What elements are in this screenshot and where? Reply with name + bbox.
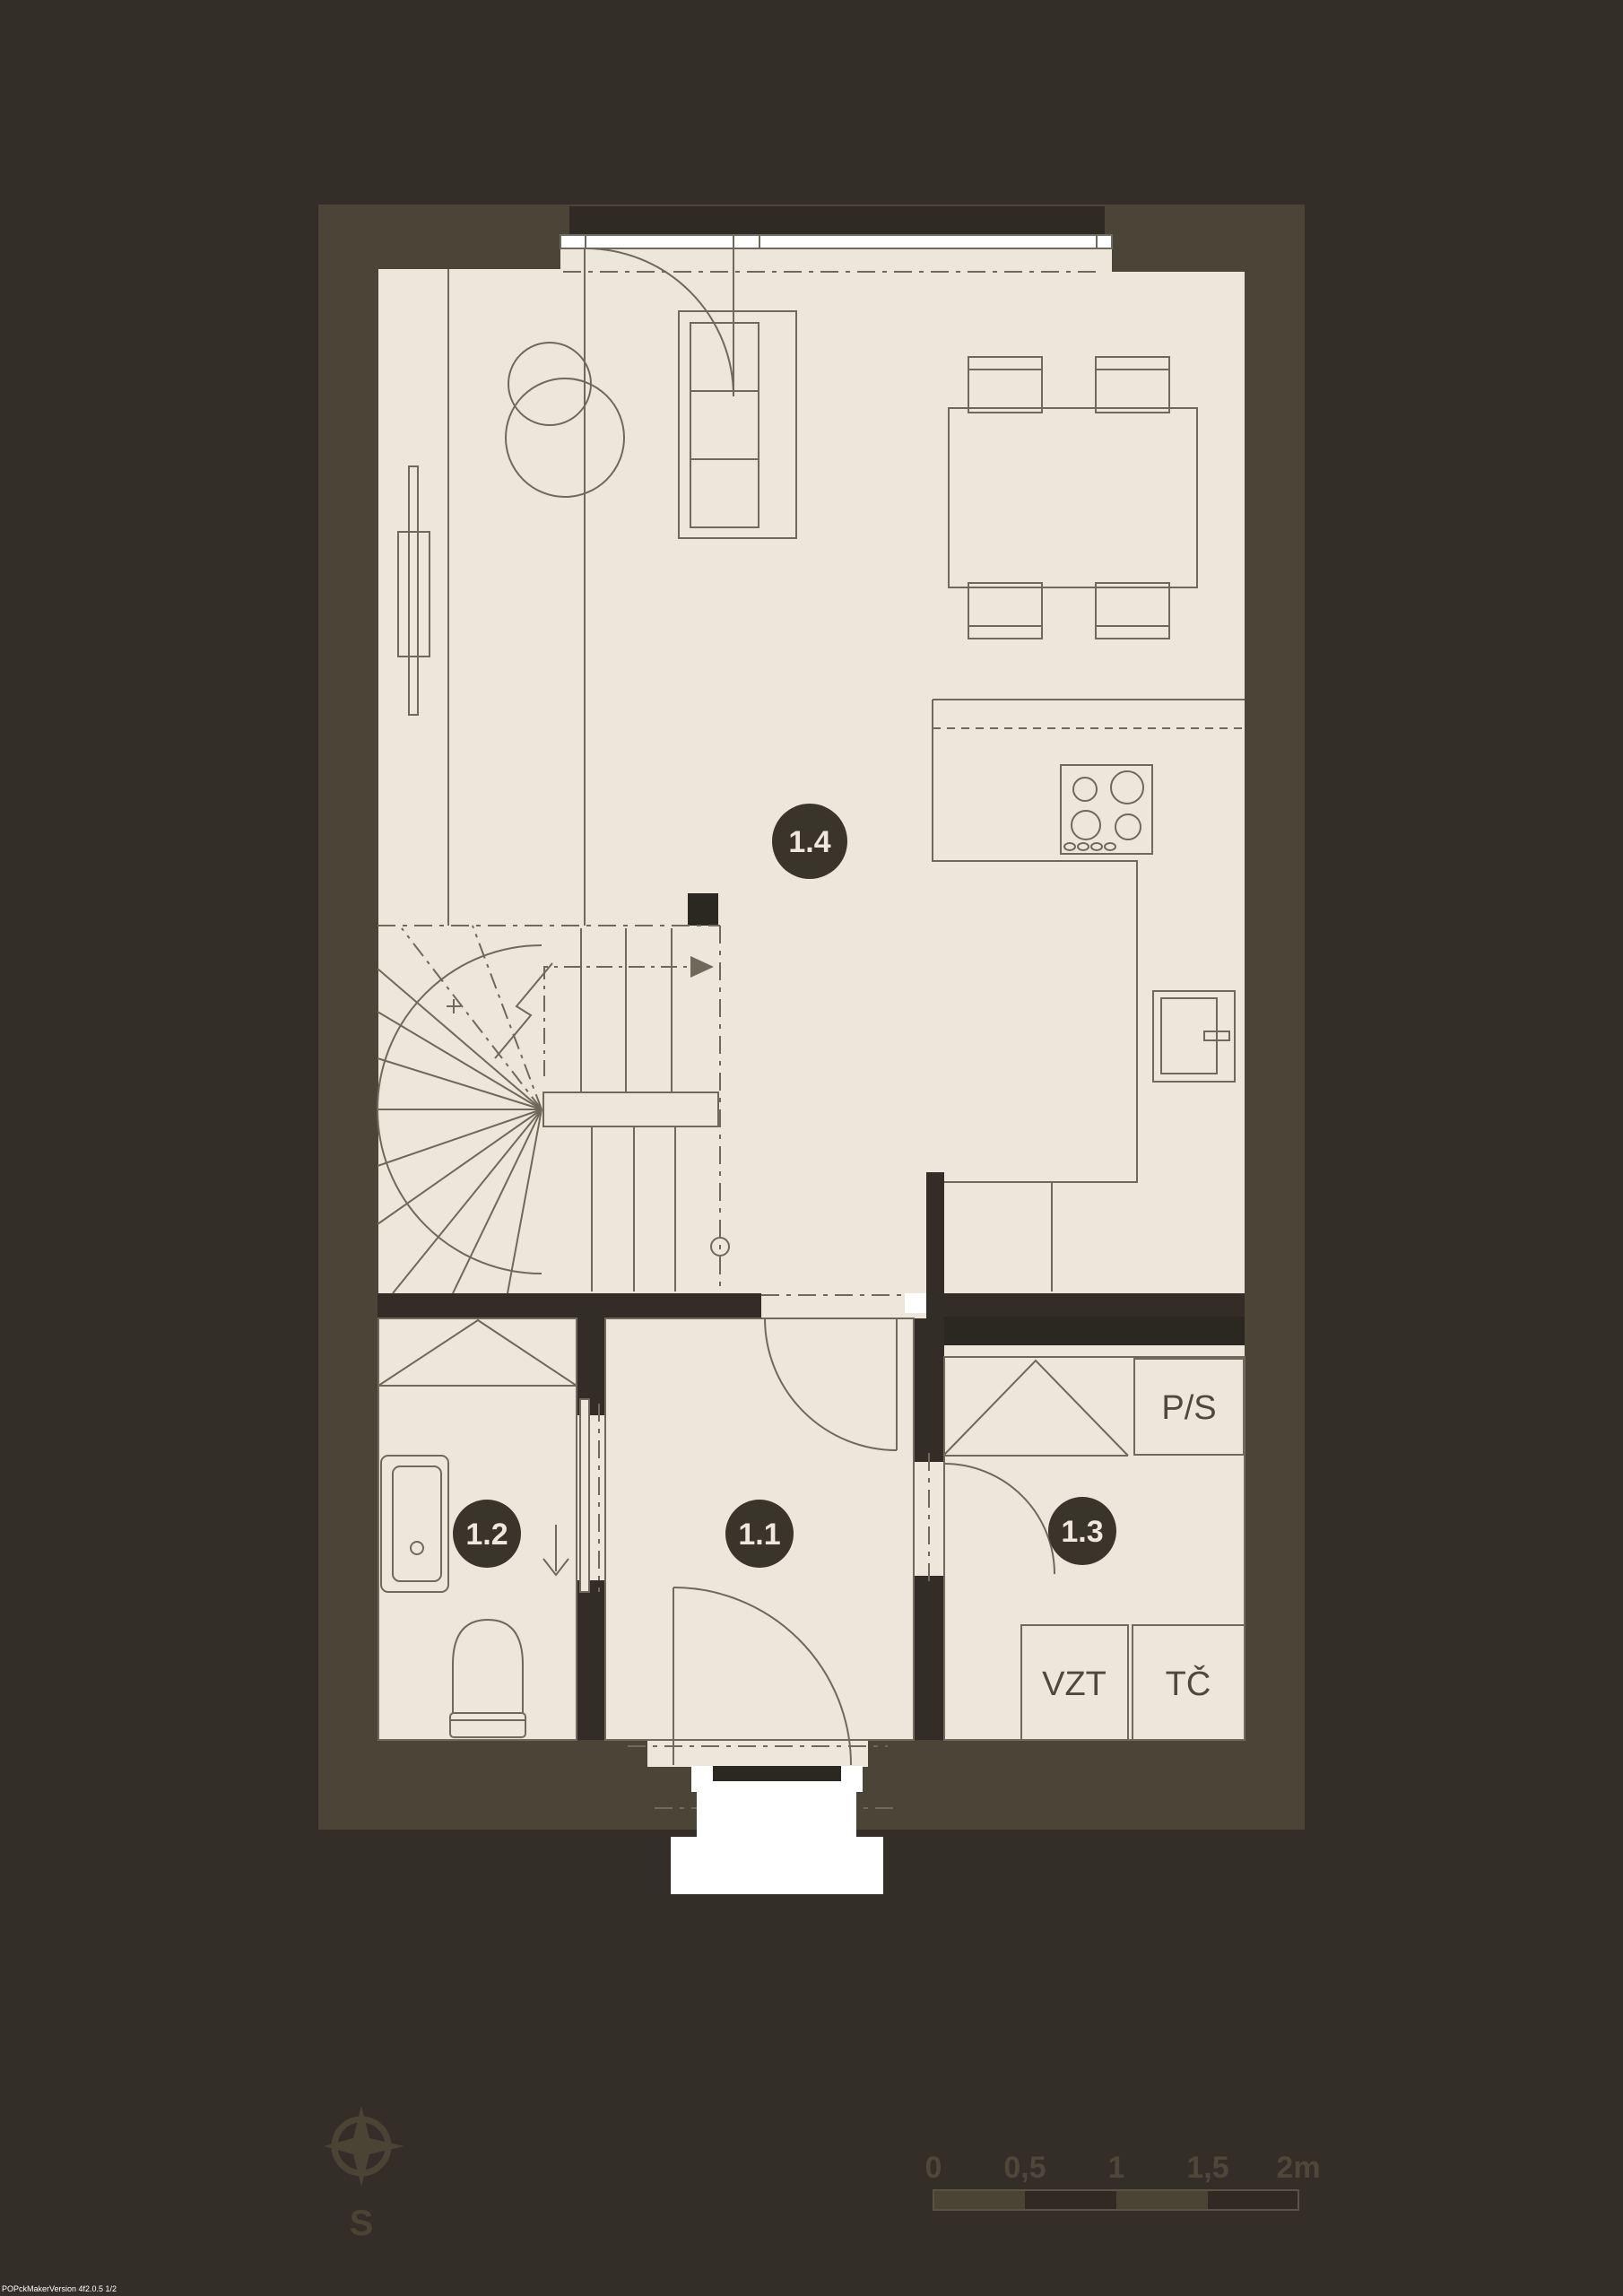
room-badge-1-1: 1.1: [725, 1500, 794, 1568]
ventilation-label: VZT: [1042, 1665, 1107, 1703]
step-2: [671, 1837, 883, 1894]
heat-pump-label: TČ: [1166, 1664, 1211, 1703]
scale-seg-3: [1116, 2190, 1208, 2210]
scale-seg-4: [1208, 2190, 1298, 2210]
stair-handrail: [543, 1092, 718, 1126]
wall-12-11-lower: [577, 1580, 605, 1740]
room-label-1-2: 1.2: [465, 1518, 508, 1552]
scale-label-2m: 2m: [1276, 2151, 1320, 2185]
threshold: [713, 1766, 841, 1781]
floor-plan-canvas: P/S VZT TČ 1.4 1.2 1.1 1.3 S: [0, 0, 1623, 2296]
room-label-1-4: 1.4: [788, 825, 830, 859]
entrance-steps: [671, 1766, 883, 1894]
scale-bar: 0 0,5 1 1,5 2m: [925, 2151, 1321, 2210]
scale-label-0: 0: [925, 2151, 942, 2185]
entrance-floor: [647, 1740, 868, 1767]
window-glass-icon: [560, 235, 1112, 248]
room-badge-1-4: 1.4: [772, 804, 847, 879]
watermark-text: POPckMakerVersion 4f2.0.5 1/2: [2, 2284, 117, 2293]
wall-stair-bathroom: [378, 1293, 761, 1318]
scale-seg-2: [1025, 2190, 1116, 2210]
wall-11-13-upper: [914, 1318, 944, 1462]
window-lintel: [569, 206, 1105, 235]
washer-dryer-label: P/S: [1161, 1389, 1216, 1427]
wall-dark-stripe: [943, 1317, 1245, 1345]
room-label-1-3: 1.3: [1061, 1515, 1103, 1549]
pocket-door-panel: [580, 1399, 589, 1592]
room-label-1-1: 1.1: [738, 1518, 780, 1552]
compass: S: [324, 2106, 404, 2243]
scale-label-05: 0,5: [1003, 2151, 1046, 2185]
compass-south-label: S: [350, 2204, 374, 2243]
hall-door-frame: [905, 1293, 926, 1313]
window-band: [560, 206, 1112, 248]
compass-star-icon: [324, 2106, 404, 2187]
step-1: [697, 1781, 856, 1837]
room-badge-1-3: 1.3: [1048, 1497, 1116, 1565]
wall-room13-top: [926, 1293, 1245, 1318]
scale-seg-1: [933, 2190, 1025, 2210]
room-badge-1-2: 1.2: [453, 1500, 521, 1568]
wall-11-13-lower: [914, 1576, 944, 1740]
stair-column: [688, 893, 718, 926]
scale-label-1: 1: [1108, 2151, 1125, 2185]
scale-label-15: 1,5: [1186, 2151, 1228, 2185]
